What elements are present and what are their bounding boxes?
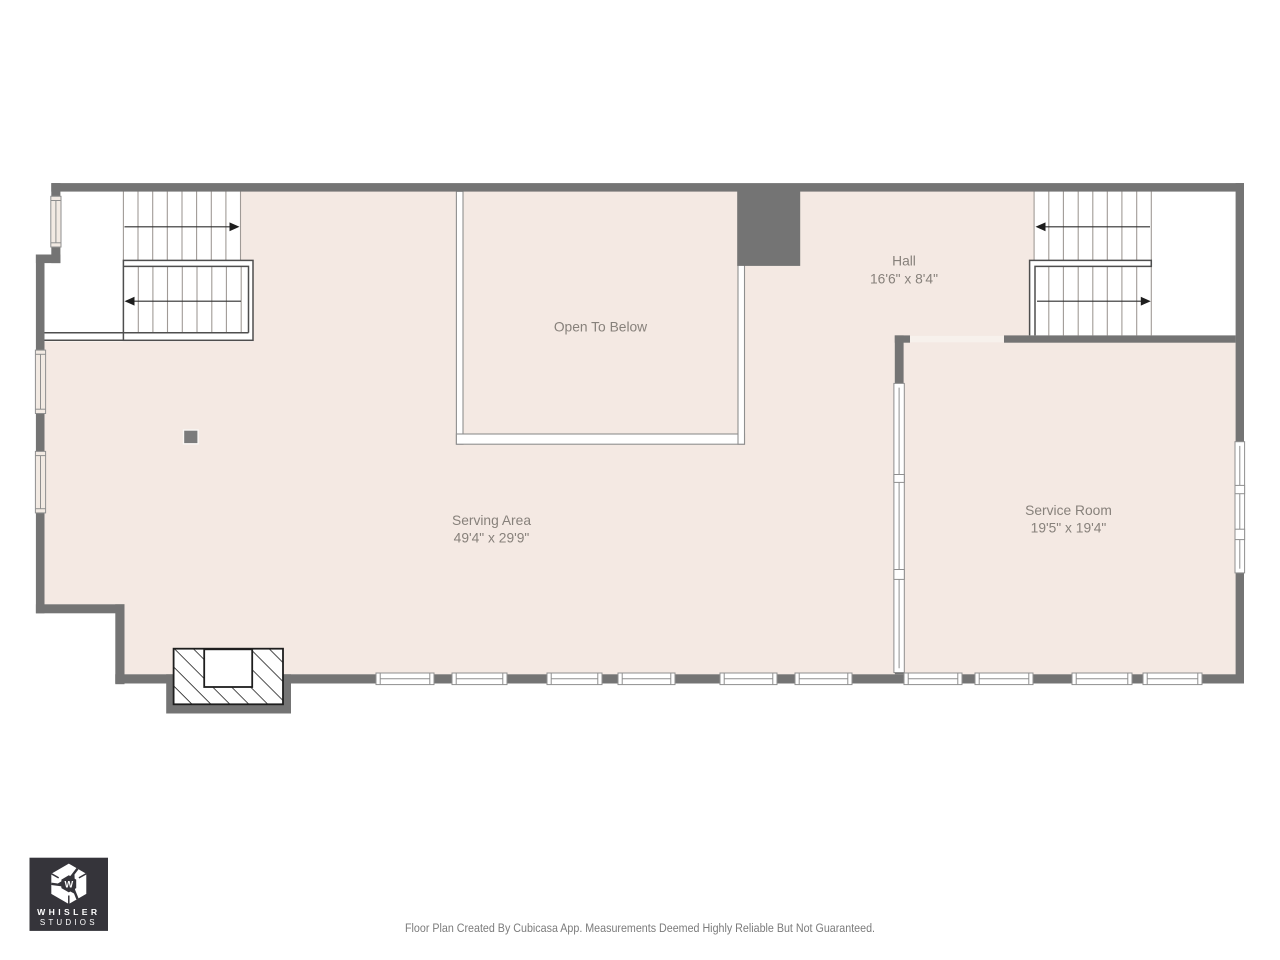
svg-text:Floor Plan Created By Cubicasa: Floor Plan Created By Cubicasa App. Meas… xyxy=(405,921,875,935)
svg-text:16'6" x 8'4": 16'6" x 8'4" xyxy=(870,271,938,286)
svg-text:Open To Below: Open To Below xyxy=(554,320,647,335)
svg-text:19'5" x 19'4": 19'5" x 19'4" xyxy=(1031,521,1107,536)
svg-text:WHISLER: WHISLER xyxy=(37,907,100,917)
svg-text:Service Room: Service Room xyxy=(1025,503,1112,518)
svg-text:Hall: Hall xyxy=(892,253,916,268)
svg-text:Serving Area: Serving Area xyxy=(452,513,531,528)
svg-text:49'4" x 29'9": 49'4" x 29'9" xyxy=(454,531,530,546)
svg-text:STUDIOS: STUDIOS xyxy=(40,918,98,927)
svg-text:W: W xyxy=(64,880,73,890)
